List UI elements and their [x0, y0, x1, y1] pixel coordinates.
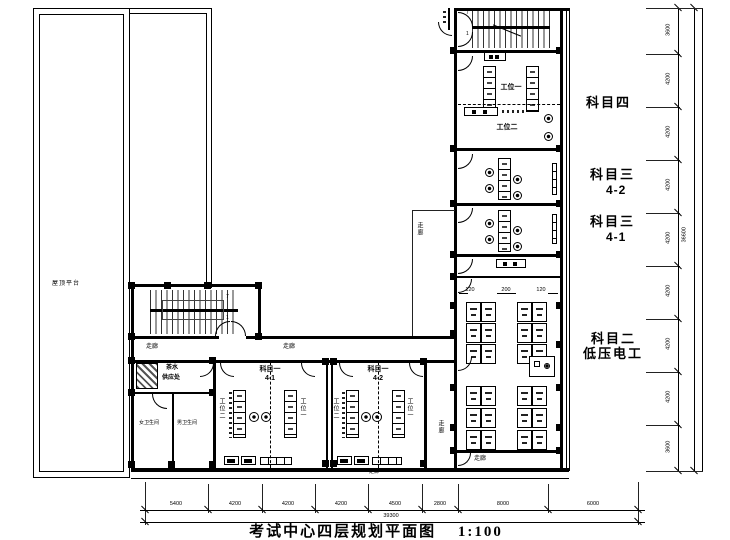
drawing-title-text: 考试中心四层规划平面图 — [249, 524, 436, 540]
equipment-marks — [502, 110, 524, 113]
equipment-box — [534, 361, 540, 367]
door-arc — [220, 363, 234, 377]
subject4-label: 科目四 — [586, 96, 631, 109]
roof-terrace-inner-line — [39, 14, 124, 472]
extension-line — [646, 319, 680, 320]
toilet-women-label: 女卫生间 — [139, 421, 159, 426]
double-door-arc — [231, 321, 246, 336]
chair — [261, 412, 271, 422]
dim-right: 4200 — [666, 123, 672, 141]
workstation2-label: 工位二 — [218, 398, 224, 419]
console-table — [372, 457, 402, 465]
tea-label-2: 供应处 — [162, 375, 180, 381]
column — [209, 461, 216, 468]
room-label: 科目一 — [260, 366, 281, 373]
dim-bottom: 4200 — [282, 502, 294, 508]
drawing-scale: 1:100 — [458, 524, 503, 540]
corridor-label: 走廊 — [369, 470, 379, 475]
desk — [517, 408, 532, 428]
wall — [258, 336, 456, 339]
column — [556, 341, 563, 348]
exam-table — [392, 390, 405, 438]
extension-line — [646, 372, 680, 373]
column — [556, 302, 563, 309]
wall — [134, 360, 456, 363]
extension-line — [638, 482, 639, 525]
desk — [466, 430, 481, 450]
wall — [213, 360, 216, 471]
column — [322, 460, 329, 467]
door-arc — [458, 259, 473, 274]
corridor-label: 走廊 — [146, 344, 158, 350]
dim-bottom: 2800 — [434, 502, 446, 508]
desk — [517, 430, 532, 450]
label-marks — [229, 392, 232, 438]
door-arc — [458, 12, 473, 27]
extension-line — [646, 54, 680, 55]
console-table — [337, 456, 352, 465]
dimension-line — [678, 8, 679, 472]
column — [128, 389, 135, 396]
roof-extension-outline — [130, 8, 212, 288]
exam-table — [346, 390, 359, 438]
roof-extension-line — [206, 13, 207, 287]
column — [556, 251, 563, 258]
wall — [457, 450, 560, 453]
column — [322, 358, 329, 365]
extension-line — [678, 471, 703, 472]
dimension-total-line — [694, 8, 695, 472]
chair — [485, 235, 494, 244]
column — [420, 460, 427, 467]
chair — [513, 226, 522, 235]
column — [168, 461, 175, 468]
equipment-circle — [544, 363, 550, 369]
tea-label-1: 茶水 — [166, 365, 178, 371]
wall — [326, 362, 328, 471]
exam-table — [498, 210, 511, 252]
column — [450, 47, 457, 54]
workstation-table — [483, 66, 496, 112]
extension-line — [646, 471, 680, 472]
subject2-sublabel: 低压电工 — [583, 347, 643, 360]
equipment-circle — [544, 114, 553, 123]
wall — [457, 148, 560, 151]
staircase-treads — [472, 11, 550, 48]
partition-dashed-line — [458, 104, 560, 105]
desk — [532, 386, 547, 406]
wall — [454, 8, 457, 471]
door-arc — [301, 363, 315, 377]
wall-panel — [552, 163, 557, 195]
balcony-edge-line — [131, 478, 569, 479]
column — [450, 251, 457, 258]
extension-line — [646, 213, 680, 214]
desk — [481, 408, 496, 428]
wall — [457, 254, 560, 257]
detail-dim: 120 — [536, 288, 545, 294]
column — [450, 330, 457, 337]
exam-table — [284, 390, 297, 438]
stair-number: 7 — [226, 295, 229, 300]
workstation1-label: 工位一 — [406, 398, 412, 419]
workstation1-label: 工位一 — [501, 84, 522, 91]
dim-right: 4200 — [666, 176, 672, 194]
equipment-box — [529, 356, 555, 377]
dimension-total-line — [140, 522, 645, 523]
label-marks — [342, 392, 345, 438]
extension-line — [646, 8, 680, 9]
wall — [457, 276, 560, 278]
column — [255, 282, 262, 289]
corridor-edge-line — [412, 210, 455, 211]
column — [204, 282, 211, 289]
console-table — [224, 456, 239, 465]
room-sublabel: 4-1 — [265, 375, 275, 382]
detail-dim-line — [459, 293, 468, 294]
column — [330, 358, 337, 365]
column — [209, 389, 216, 396]
chair — [361, 412, 371, 422]
dim-bottom: 6000 — [587, 502, 599, 508]
dim-right: 4200 — [666, 70, 672, 88]
desk — [481, 430, 496, 450]
desk — [532, 430, 547, 450]
door-arc — [152, 394, 167, 409]
door-arc — [409, 363, 423, 377]
column — [450, 384, 457, 391]
desk — [517, 302, 532, 322]
wall — [569, 8, 570, 471]
chair — [372, 412, 382, 422]
chair — [485, 219, 494, 228]
column — [556, 447, 563, 454]
chair — [513, 175, 522, 184]
roof-extension-line — [130, 13, 207, 14]
column — [450, 447, 457, 454]
column — [128, 333, 135, 340]
console-table — [496, 259, 526, 268]
wall — [172, 394, 174, 471]
desk — [517, 323, 532, 343]
column — [556, 200, 563, 207]
extension-line — [145, 482, 146, 525]
column — [128, 357, 135, 364]
exam-table — [498, 158, 511, 200]
exam-table — [233, 390, 246, 438]
door-arc — [458, 154, 473, 169]
desk — [481, 344, 496, 364]
console-table — [241, 456, 256, 465]
dim-right: 3600 — [666, 438, 672, 456]
wall — [566, 8, 567, 471]
door-arc — [458, 453, 471, 466]
chair — [513, 242, 522, 251]
column — [450, 273, 457, 280]
subject2-label: 科目二 — [591, 332, 636, 345]
desk — [466, 302, 481, 322]
column — [556, 47, 563, 54]
dim-bottom: 8000 — [497, 502, 509, 508]
drawing-title: 考试中心四层规划平面图 1:100 — [249, 525, 503, 540]
door-arc — [458, 56, 473, 71]
workstation-table — [526, 66, 539, 112]
dim-bottom: 5400 — [170, 502, 182, 508]
detail-dim-line — [548, 293, 558, 294]
dim-bottom-total: 39300 — [383, 514, 398, 520]
room-label: 科目一 — [368, 366, 389, 373]
column — [255, 333, 262, 340]
column — [164, 282, 171, 289]
dimension-line — [140, 510, 645, 511]
door-arc — [458, 208, 473, 223]
desk — [532, 302, 547, 322]
dim-right-total: 36600 — [682, 226, 688, 244]
dim-bottom: 4200 — [229, 502, 241, 508]
detail-dim-line — [497, 293, 516, 294]
column — [450, 302, 457, 309]
staircase-rail — [162, 300, 224, 320]
extension-line — [678, 8, 703, 9]
wall — [258, 284, 261, 339]
column — [556, 384, 563, 391]
chair — [513, 191, 522, 200]
door-arc — [458, 32, 473, 47]
door-arc — [339, 363, 353, 377]
subject3-sublabel: 4-2 — [606, 184, 626, 196]
floor-plan: 屋顶平台 — [0, 0, 730, 540]
subject3-label: 科目三 — [590, 168, 635, 181]
dim-bottom: 4500 — [389, 502, 401, 508]
door-arc — [458, 357, 472, 371]
console-table — [484, 52, 506, 61]
extension-line — [646, 425, 680, 426]
entry-label-marks — [443, 11, 446, 24]
wall — [131, 284, 134, 471]
wall — [131, 284, 261, 287]
corridor-label: 走廊 — [474, 456, 486, 462]
door-arc — [200, 363, 214, 377]
subject3-label: 科目三 — [590, 215, 635, 228]
column — [128, 282, 135, 289]
column — [330, 460, 337, 467]
chair — [485, 184, 494, 193]
wall — [134, 392, 215, 394]
workstation2-label: 工位二 — [332, 398, 338, 419]
extension-line — [646, 160, 680, 161]
wall-panel — [552, 214, 557, 244]
console-table — [260, 457, 292, 465]
column — [556, 424, 563, 431]
toilet-men-label: 男卫生间 — [177, 421, 197, 426]
dim-bottom: 4200 — [335, 502, 347, 508]
corridor-label: 走廊 — [283, 344, 295, 350]
subject3-sublabel: 4-1 — [606, 231, 626, 243]
desk — [481, 302, 496, 322]
console-table — [464, 107, 498, 116]
workstation1-label: 工位一 — [299, 398, 305, 419]
desk — [466, 386, 481, 406]
equipment-circle — [544, 132, 553, 141]
wall — [424, 362, 427, 471]
desk — [481, 323, 496, 343]
desk — [532, 323, 547, 343]
wall — [131, 468, 569, 472]
chair — [485, 168, 494, 177]
roof-terrace-label: 屋顶平台 — [52, 281, 80, 287]
dim-right: 4200 — [666, 229, 672, 247]
corridor-label: 走廊 — [437, 420, 443, 434]
column — [450, 424, 457, 431]
corridor-label: 走廊 — [416, 222, 422, 236]
desk — [532, 408, 547, 428]
dim-right: 3600 — [666, 21, 672, 39]
workstation2-label: 工位二 — [497, 124, 518, 131]
entry-door-arc — [438, 22, 452, 36]
chair — [249, 412, 259, 422]
wall — [457, 203, 560, 206]
room-sublabel: 4-2 — [373, 375, 383, 382]
desk — [466, 408, 481, 428]
water-station-counter — [136, 363, 158, 389]
column — [556, 145, 563, 152]
dim-right: 4200 — [666, 388, 672, 406]
dim-right: 4200 — [666, 335, 672, 353]
corridor-edge-line — [412, 210, 413, 336]
staircase-landing — [472, 26, 550, 29]
boundary-line — [702, 8, 703, 472]
desk — [481, 386, 496, 406]
column — [450, 145, 457, 152]
column — [128, 461, 135, 468]
extension-line — [646, 266, 680, 267]
dim-right: 4200 — [666, 282, 672, 300]
desk — [466, 323, 481, 343]
console-table — [354, 456, 369, 465]
column — [450, 200, 457, 207]
wall — [560, 8, 563, 471]
wall — [457, 50, 560, 53]
desk — [517, 386, 532, 406]
wall — [131, 336, 219, 339]
extension-line — [646, 107, 680, 108]
